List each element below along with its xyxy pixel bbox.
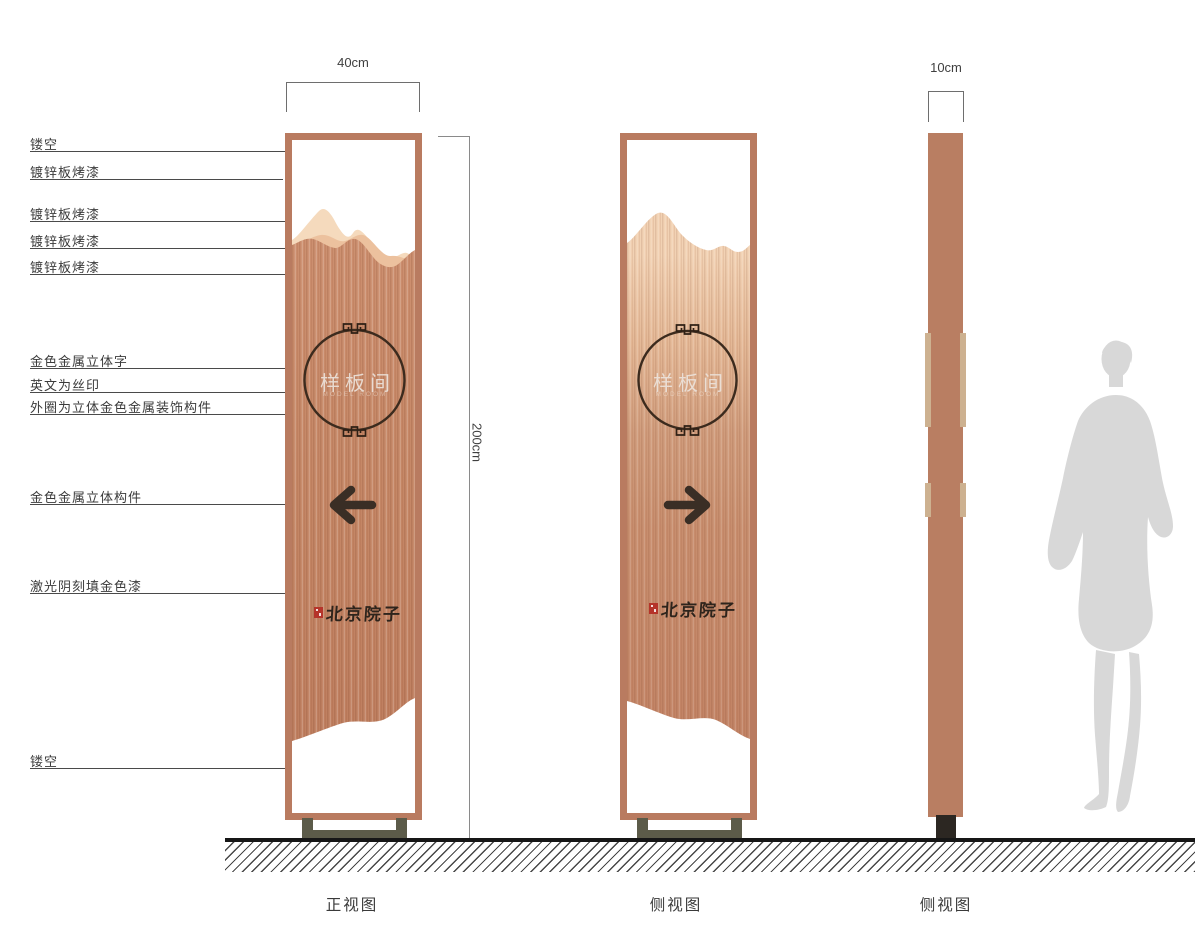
leader-line [30, 414, 303, 415]
room-name-english: MODEL ROOM [295, 391, 415, 398]
protruding-ornament-edge [925, 333, 931, 427]
brand-logo-text: 北京院子 [660, 596, 738, 621]
brand-logo: 北京院子 [298, 600, 418, 625]
brushed-texture [627, 213, 750, 739]
room-name-english: MODEL ROOM [628, 391, 748, 398]
dim-width-label: 40cm [323, 55, 383, 70]
height-dimension-line [469, 136, 470, 838]
ground-hatch [225, 842, 1195, 872]
dim-height-label: 200cm [470, 418, 485, 468]
signage-design-drawing: 镂空 镀锌板烤漆 镀锌板烤漆 镀锌板烤漆 镀锌板烤漆 金色金属立体字 英文为丝印… [0, 0, 1195, 927]
dim-bracket-line [928, 91, 964, 92]
dim-bracket-tick [419, 82, 420, 112]
leader-line [30, 768, 302, 769]
dim-bracket-tick [928, 91, 929, 122]
front-view-sign [285, 133, 422, 845]
sign-base-bracket [302, 818, 407, 840]
dim-bracket-tick [963, 91, 964, 122]
leader-line [30, 392, 320, 393]
caption-side-view-2: 侧视图 [901, 893, 991, 915]
slab-base-block [936, 815, 956, 839]
protruding-ornament-edge [960, 333, 966, 427]
caption-side-view-1: 侧视图 [631, 893, 721, 915]
dim-bracket-tick [286, 82, 287, 112]
brand-logo: 北京院子 [633, 596, 753, 621]
leader-line [30, 368, 325, 369]
leader-line [30, 274, 292, 275]
brand-logo-text: 北京院子 [325, 600, 403, 625]
seal-stamp-icon [314, 607, 323, 618]
protruding-arrow-edge [960, 483, 966, 517]
dim-depth-label: 10cm [916, 60, 976, 75]
sign-base-bracket [637, 818, 742, 840]
height-dim-top-tick [438, 136, 469, 137]
leader-line [30, 248, 292, 249]
depth-slab [928, 133, 963, 817]
side-view-sign [620, 133, 757, 845]
dim-bracket-line [286, 82, 420, 83]
leader-line [30, 504, 328, 505]
person-silhouette [1032, 337, 1182, 838]
leader-line [30, 179, 283, 180]
caption-front-view: 正视图 [307, 893, 397, 915]
leader-line [30, 221, 323, 222]
protruding-arrow-edge [925, 483, 931, 517]
leader-line [30, 151, 305, 152]
seal-stamp-icon [649, 603, 658, 614]
